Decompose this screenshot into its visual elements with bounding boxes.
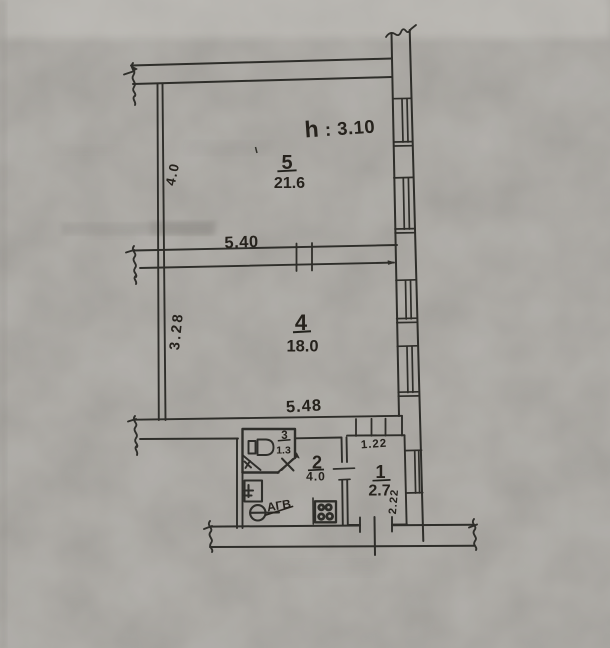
svg-text:4.0: 4.0 (306, 470, 326, 484)
svg-text:5.48: 5.48 (286, 397, 323, 417)
svg-text:2.7: 2.7 (368, 483, 390, 500)
svg-text:21.6: 21.6 (274, 175, 305, 192)
svg-text:18.0: 18.0 (286, 338, 318, 356)
svg-text:1.3: 1.3 (276, 445, 291, 457)
svg-text:1.22: 1.22 (360, 438, 387, 452)
svg-text:2.22: 2.22 (387, 488, 401, 514)
svg-text:5.40: 5.40 (224, 233, 259, 252)
svg-text:1: 1 (375, 462, 385, 482)
